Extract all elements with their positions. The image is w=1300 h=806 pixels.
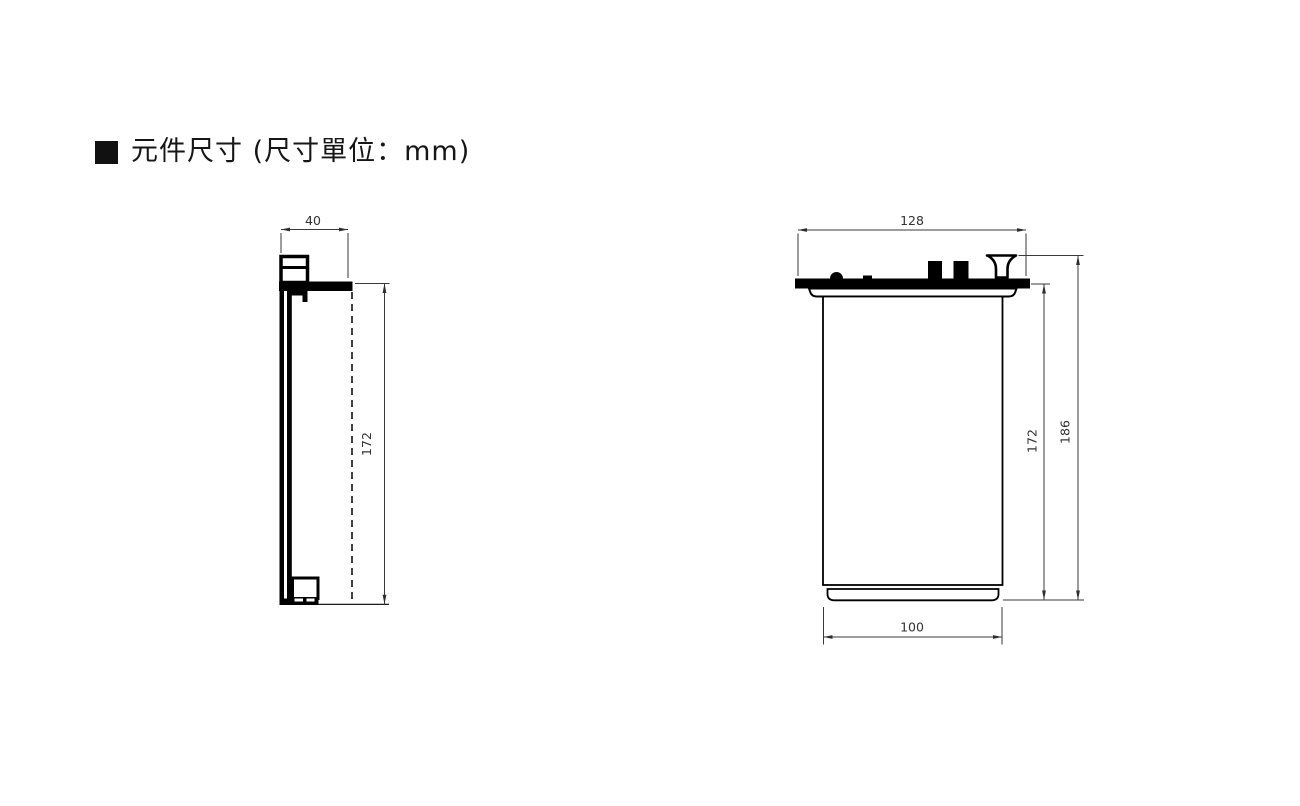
front-view-drawing: 128 100 xyxy=(795,213,1084,645)
arrow-down-icon xyxy=(1076,591,1080,601)
arrow-right-icon xyxy=(1017,228,1026,232)
front-small-tab xyxy=(863,276,872,279)
side-connector-box xyxy=(281,257,308,283)
front-skirt xyxy=(809,289,1017,297)
front-funnel-knob xyxy=(987,256,1016,278)
side-bottom-notch-1 xyxy=(295,599,304,602)
front-base-plate xyxy=(828,589,999,600)
arrow-up-icon xyxy=(383,284,387,294)
side-body-inner-wall xyxy=(287,291,292,599)
arrow-right-icon xyxy=(993,635,1002,639)
arrow-left-icon xyxy=(798,228,807,232)
dim-front-top-width: 128 xyxy=(798,213,1026,276)
dim-front-body-height-label: 172 xyxy=(1025,429,1040,453)
arrow-right-icon xyxy=(339,228,348,232)
dim-front-total-height: 186 xyxy=(1019,256,1084,601)
dim-front-top-width-label: 128 xyxy=(900,213,924,228)
arrow-up-icon xyxy=(1076,256,1080,266)
dim-front-body-height: 172 xyxy=(1025,284,1051,600)
dim-front-total-height-label: 186 xyxy=(1058,420,1073,444)
front-body xyxy=(823,297,1003,586)
side-body-outer-wall xyxy=(280,291,285,605)
dim-side-top-width-label: 40 xyxy=(305,213,321,228)
side-mounting-plate xyxy=(279,282,353,292)
dimension-drawing: 40 xyxy=(0,0,1300,806)
dim-front-bottom-width: 100 xyxy=(824,607,1003,645)
arrow-left-icon xyxy=(281,228,290,232)
arrow-down-icon xyxy=(383,595,387,605)
dim-side-height: 172 xyxy=(355,284,390,605)
front-top-plate xyxy=(795,279,1030,289)
arrow-up-icon xyxy=(1042,284,1046,294)
side-hook-tab xyxy=(303,291,308,302)
side-bottom-box xyxy=(293,578,319,599)
arrow-down-icon xyxy=(1042,591,1046,601)
arrow-left-icon xyxy=(824,635,833,639)
page: 元件尺寸 (尺寸單位：mm) 40 xyxy=(0,0,1300,806)
front-dome-knob xyxy=(830,272,843,278)
dim-side-height-label: 172 xyxy=(359,432,374,456)
side-bottom-notch-2 xyxy=(307,599,315,602)
front-terminal-block-1 xyxy=(928,261,942,279)
front-terminal-block-2 xyxy=(954,261,969,279)
side-view-drawing: 40 xyxy=(279,213,390,605)
dim-front-bottom-width-label: 100 xyxy=(900,620,924,635)
